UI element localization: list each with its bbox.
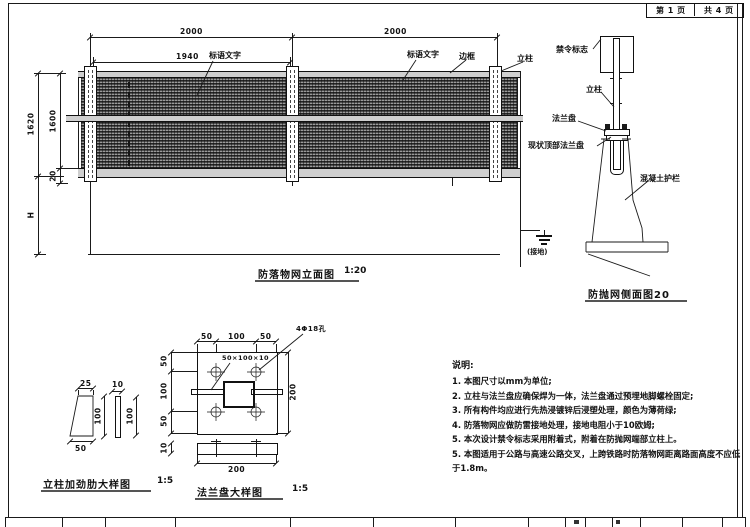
stiffener-size-label: 50×100×10: [222, 354, 269, 362]
frame-top: [8, 3, 743, 4]
flange-dim-left-bottom: 50: [160, 415, 169, 426]
flange-dim-width: 200: [228, 465, 245, 474]
stiffener-dim-height-b: 100: [126, 407, 135, 424]
notes-block: 说明: 1. 本图尺寸以mm为单位; 2. 立柱与法兰盘应确保焊为一体，法兰盘通…: [452, 358, 744, 476]
dim-height-net: 1600: [49, 110, 58, 133]
title-block-divider: [62, 517, 63, 527]
dim-line: [104, 396, 105, 436]
dim-rail: 20: [49, 170, 58, 181]
dim-line-inner: [93, 62, 290, 63]
post-label: 立柱: [517, 53, 533, 64]
dim-ext: [276, 344, 277, 352]
slogan-label-1: 标语文字: [209, 50, 241, 61]
dim-below: H: [27, 212, 36, 219]
leader-flange: [578, 121, 606, 131]
title-block-divider: [5, 517, 6, 527]
fence-post: [489, 66, 502, 182]
dim-line: [70, 441, 93, 442]
flange-caption-underline: [195, 498, 283, 500]
title-block-divider: [373, 517, 374, 527]
mid-rail: [66, 115, 523, 122]
stiffener-bar: [251, 389, 283, 395]
existing-flange-label: 现状顶部法兰盘: [528, 140, 584, 151]
dim-span1: 2000: [180, 27, 203, 36]
post-flange-line: [294, 70, 295, 178]
note-item: 4. 防落物网应做防雷接地处理，接地电阻小于10欧姆;: [452, 418, 744, 433]
side-view-caption-underline: [585, 300, 687, 302]
dim-ext: [171, 352, 197, 353]
title-block-text-fragment: [574, 520, 579, 524]
ground-symbol-bar: [539, 239, 550, 241]
mesh-panel: [81, 77, 517, 168]
dim-ext: [256, 344, 257, 352]
note-item: 3. 所有构件均应进行先热浸镀锌后浸塑处理，颜色为薄荷绿;: [452, 403, 744, 418]
dim-ext: [216, 344, 217, 352]
elevation-caption: 防落物网立面图: [258, 266, 335, 281]
fence-post: [84, 66, 97, 182]
dim-ext: [197, 344, 198, 352]
title-block-top: [5, 517, 745, 518]
stiffener-caption: 立柱加劲肋大样图: [43, 476, 131, 491]
post-below-line: [90, 180, 91, 254]
dim-line-span: [90, 37, 497, 38]
embedded-post: [613, 139, 621, 170]
drawing-sheet: 第 1 页 共 4 页 2000 2000 1940 标语文字 1620 160…: [0, 0, 750, 527]
post-flange-line: [88, 70, 89, 178]
flange-holes-label: 4Φ18孔: [296, 324, 326, 334]
note-item: 2. 立柱与法兰盘应确保焊为一体，法兰盘通过预埋地脚螺栓固定;: [452, 389, 744, 404]
side-post: [613, 38, 620, 133]
stiffener-dim-bottom: 50: [75, 444, 86, 453]
dim-tick: [101, 433, 107, 439]
ground-connector: [520, 230, 540, 231]
stiffener-trapezoid: [70, 396, 93, 436]
note-item: 5. 本次设计禁令标志采用附着式，附着在防抛网端部立柱上。: [452, 432, 744, 447]
ground-line: [88, 254, 500, 255]
dim-ext: [171, 411, 197, 412]
side-post-label: 立柱: [586, 84, 602, 95]
dim-ext: [292, 33, 293, 68]
stiffener-caption-underline: [41, 490, 151, 492]
sheet-total-label: 共 4 页: [704, 5, 734, 16]
dim-tick: [90, 438, 96, 444]
flange-dim-thickness: 10: [160, 442, 169, 453]
dim-line-height-total: [38, 73, 39, 254]
title-block-divider: [640, 517, 641, 527]
dim-ext: [497, 33, 498, 68]
flange-label: 法兰盘: [552, 113, 576, 124]
stiffener-dim-height-a: 100: [94, 407, 103, 424]
dim-ext: [78, 390, 79, 395]
bolt-mark: [211, 441, 221, 442]
elevation-caption-underline: [255, 280, 359, 282]
title-block-divider: [745, 517, 746, 527]
top-rail: [78, 71, 520, 78]
frame-edge-right: [520, 71, 521, 176]
barrier-profile: [586, 139, 668, 276]
frame-label: 边框: [459, 51, 475, 62]
dim-tick: [119, 388, 125, 394]
flange-dim-top-right: 50: [260, 332, 271, 341]
dim-ext: [171, 433, 197, 434]
title-block-divider: [682, 517, 683, 527]
dim-height-total: 1620: [27, 113, 36, 136]
end-line: [520, 176, 521, 267]
stiffener-bar: [191, 389, 225, 395]
dim-span2: 2000: [384, 27, 407, 36]
dim-inner: 1940: [176, 52, 199, 61]
bolt-mark: [251, 441, 261, 442]
flange-dim-left-top: 50: [160, 355, 169, 366]
title-block-divider: [105, 517, 106, 527]
flange-plate-edge: [197, 443, 278, 455]
flange-scale: 1:5: [292, 484, 308, 494]
post-flange-line: [497, 70, 498, 178]
stiffener-dim-top: 25: [80, 379, 91, 388]
sign-label: 禁令标志: [556, 44, 588, 55]
dim-tick: [285, 430, 291, 436]
ground-symbol-bar: [541, 243, 547, 245]
title-block-divider: [528, 517, 529, 527]
post-flange-line: [290, 70, 291, 178]
dim-tick: [133, 432, 139, 438]
frame-edge-left: [78, 71, 79, 176]
bottom-rail: [78, 168, 520, 178]
flange-caption: 法兰盘大样图: [197, 484, 263, 499]
title-block-divider: [722, 517, 723, 527]
title-block-divider: [175, 517, 176, 527]
dim-line: [197, 341, 276, 342]
flange-dim-top-left: 50: [201, 332, 212, 341]
note-item: 1. 本图尺寸以mm为单位;: [452, 374, 744, 389]
post-flange-line: [92, 70, 93, 178]
ground-label: (接地): [527, 247, 547, 257]
side-view-caption: 防抛网侧面图20: [588, 286, 670, 301]
dim-ext: [171, 371, 197, 372]
mesh-hidden-line: [128, 82, 130, 166]
title-block-divider: [585, 517, 586, 527]
elevation-scale: 1:20: [344, 266, 366, 276]
existing-flange-plate: [606, 135, 628, 141]
slogan-label-2: 标语文字: [407, 49, 439, 60]
title-block-divider: [455, 517, 456, 527]
post-flange-line: [493, 70, 494, 178]
title-block-divider: [290, 517, 291, 527]
stiffener-dim-thickness: 10: [112, 380, 123, 389]
fence-post: [286, 66, 299, 182]
note-item: 5. 本图适用于公路与高速公路交叉，上跨铁路时防落物网距离路面高度不应低于1.8…: [452, 447, 744, 476]
frame-left: [8, 3, 9, 517]
flange-dim-top-mid: 100: [228, 332, 245, 341]
sheet-no-label: 第 1 页: [656, 5, 686, 16]
dim-line: [171, 352, 172, 433]
dim-tick: [168, 450, 174, 456]
title-block-text-fragment: [616, 520, 620, 524]
stiffener-scale: 1:5: [157, 476, 173, 486]
ground-symbol-bar: [536, 235, 552, 237]
dim-tick: [273, 460, 279, 466]
barrier-label: 混凝土护栏: [640, 173, 680, 184]
title-block-divider: [565, 517, 566, 527]
dim-line: [136, 397, 137, 435]
dim-ext: [93, 390, 94, 395]
dim-line: [197, 463, 276, 464]
notes-title: 说明:: [452, 358, 744, 371]
title-block-divider: [612, 517, 613, 527]
flange-dim-left-mid: 100: [160, 382, 169, 399]
flange-dim-right: 200: [289, 383, 298, 400]
stiffener-rect: [115, 396, 121, 438]
frame-edge-right2: [517, 71, 518, 176]
